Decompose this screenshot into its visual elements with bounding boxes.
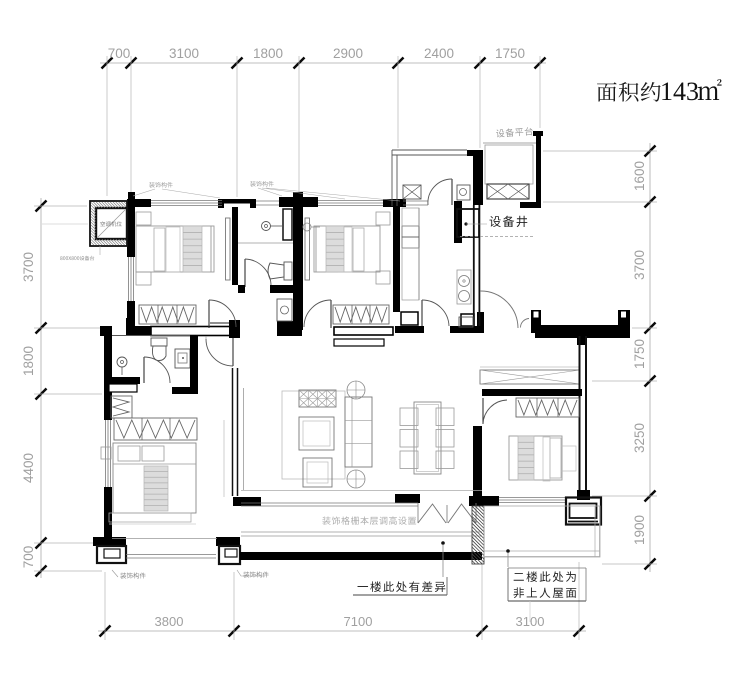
svg-text:2900: 2900 — [333, 46, 363, 61]
svg-text:3100: 3100 — [169, 46, 199, 61]
svg-text:1800: 1800 — [21, 346, 36, 376]
svg-text:1800: 1800 — [253, 46, 283, 61]
svg-text:1750: 1750 — [495, 46, 525, 61]
svg-text:3250: 3250 — [632, 423, 647, 453]
svg-text:700: 700 — [108, 46, 131, 61]
svg-text:3700: 3700 — [21, 252, 36, 282]
svg-text:1600: 1600 — [632, 161, 647, 191]
svg-text:4400: 4400 — [21, 453, 36, 483]
svg-text:1750: 1750 — [632, 339, 647, 369]
svg-text:2400: 2400 — [424, 46, 454, 61]
svg-text:3800: 3800 — [155, 614, 184, 629]
svg-text:1900: 1900 — [632, 515, 647, 545]
svg-text:3700: 3700 — [632, 250, 647, 280]
svg-text:7100: 7100 — [344, 614, 373, 629]
svg-text:700: 700 — [21, 546, 36, 569]
svg-text:143: 143 — [660, 77, 699, 106]
